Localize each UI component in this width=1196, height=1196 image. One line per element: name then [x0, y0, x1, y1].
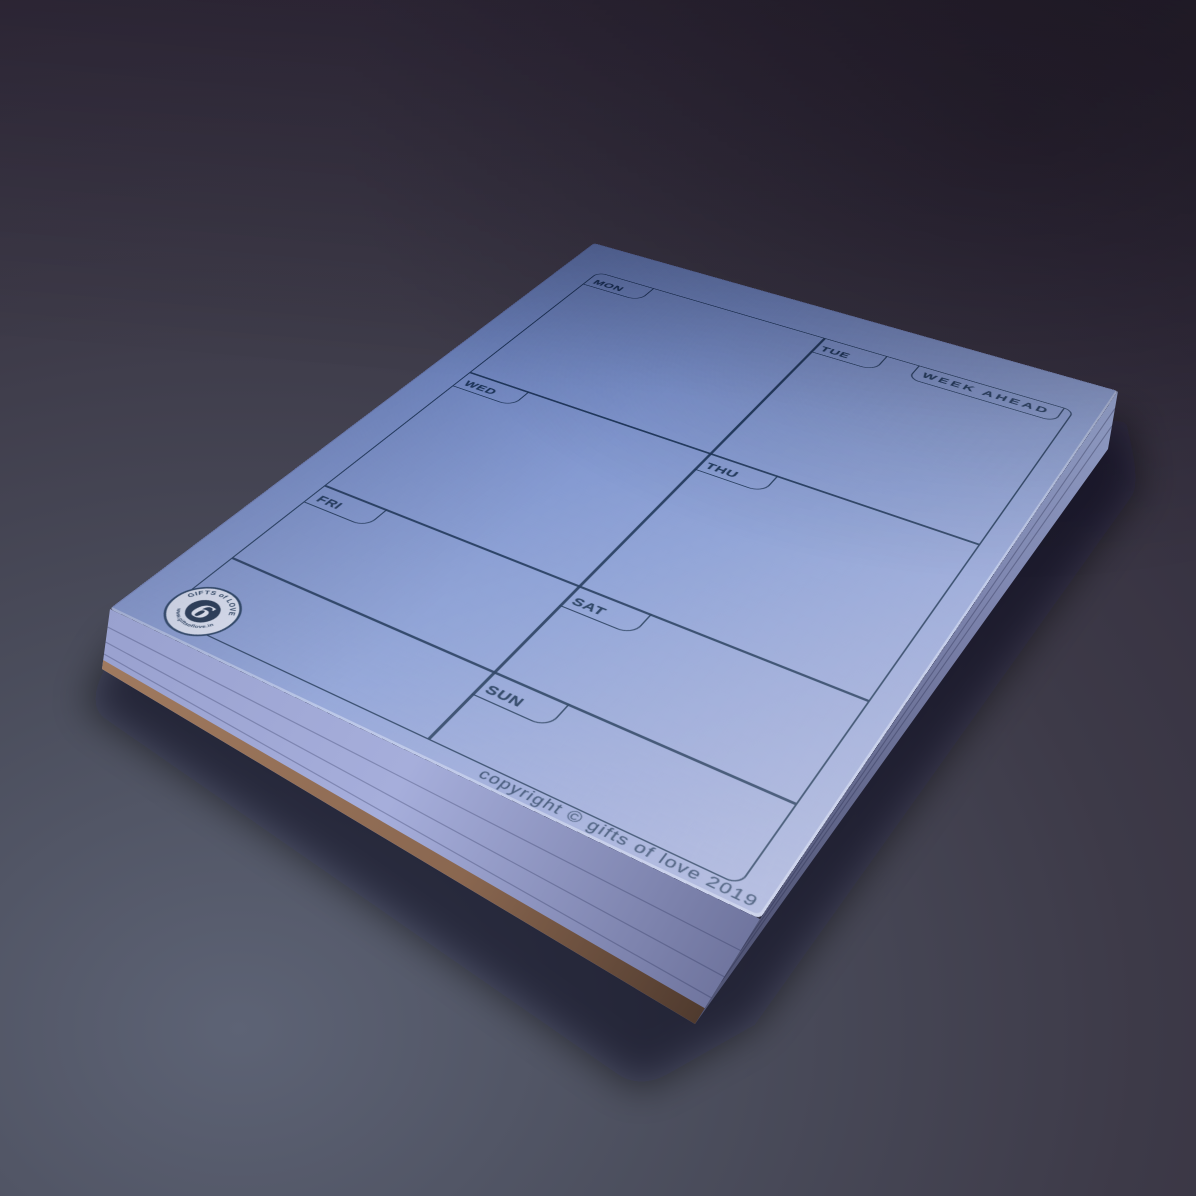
day-label-sat: SAT — [568, 596, 609, 619]
day-tab-wed: WED — [453, 372, 530, 407]
day-label-fri: FRI — [313, 494, 346, 511]
day-tab-tue: TUE — [810, 338, 887, 371]
day-label-tue: TUE — [818, 345, 853, 360]
day-tab-fri: FRI — [304, 485, 388, 527]
title-label: WEEK AHEAD — [920, 371, 1053, 415]
day-tab-mon: MON — [583, 273, 653, 301]
day-tab-sun: SUN — [471, 671, 570, 729]
day-tab-sat: SAT — [559, 585, 653, 635]
photo-scene: MON TUE WED THU FRI SAT SUN WEEK AHEAD — [0, 0, 1196, 1196]
day-label-wed: WED — [461, 380, 500, 397]
day-label-thu: THU — [702, 461, 741, 480]
title-box: WEEK AHEAD — [907, 366, 1064, 422]
day-label-sun: SUN — [481, 683, 527, 710]
day-tab-thu: THU — [694, 453, 779, 493]
day-label-mon: MON — [590, 279, 626, 293]
